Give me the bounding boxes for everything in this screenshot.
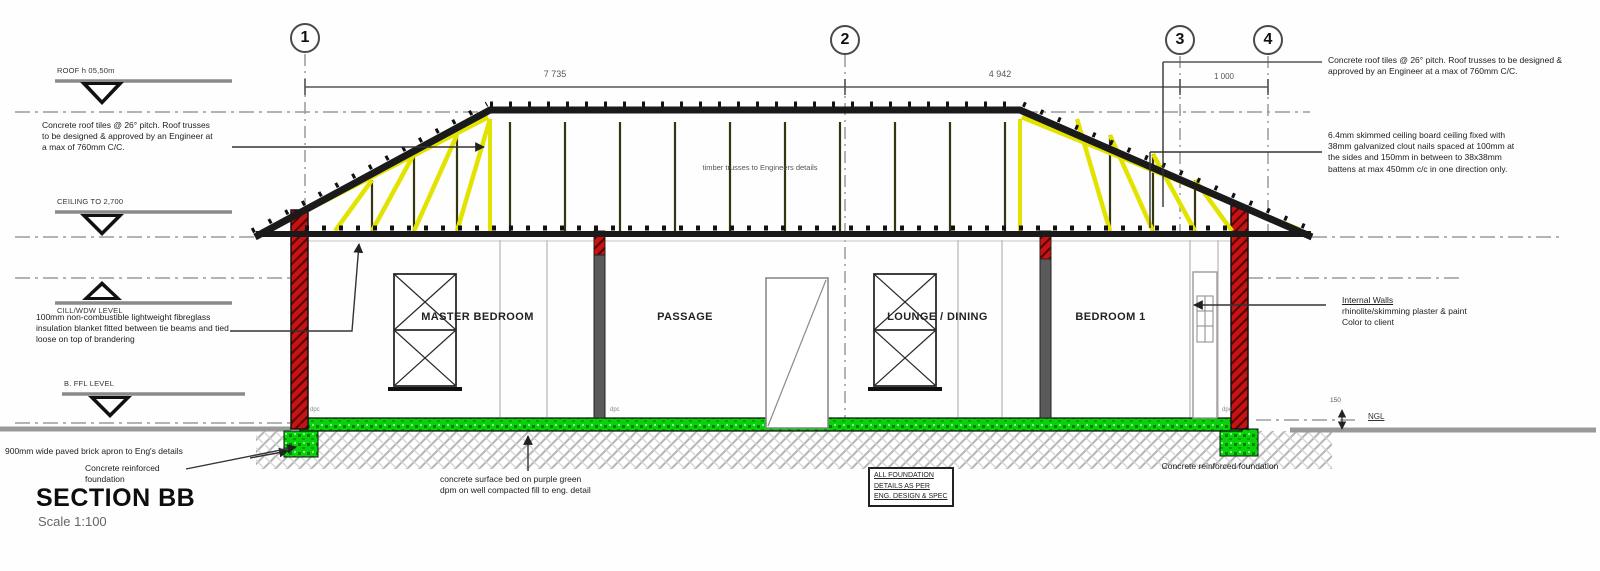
section-drawing-canvas [0,0,1600,571]
room-label-bedroom-1: BEDROOM 1 [1058,311,1163,323]
note-foundation-left: Concrete reinforced foundation [85,463,200,485]
section-drawing-sheet: 1 2 3 4 7 735 4 942 1 000 ROOF h 05,50m … [0,0,1600,571]
note-insulation: 100mm non-combustible lightweight fibreg… [36,312,236,346]
note-foundation-right: Concrete reinforced foundation [1155,461,1285,472]
note-surface-bed: concrete surface bed on purple green dpm… [440,474,600,496]
foundation-box-line1: ALL FOUNDATION [874,471,948,482]
leader-lines [186,62,1326,471]
window-lounge [868,274,942,389]
dpc-label-right: dpc [1222,407,1232,413]
room-label-lounge-dining: LOUNGE / DINING [855,311,1020,323]
level-label-ffl: B. FFL LEVEL [64,379,114,388]
grid-bubble-3: 3 [1165,25,1195,55]
drawing-scale: Scale 1:100 [38,514,107,529]
note-internal-walls-title: Internal Walls [1342,295,1393,305]
dimension-span-1-2: 7 735 [505,69,605,79]
note-paved-apron: 900mm wide paved brick apron to Eng's de… [5,446,201,457]
foundation-box-line3: ENG. DESIGN & SPEC [874,492,948,503]
foundation-box-line2: DETAILS AS PER [874,482,948,493]
dpc-label-left: dpc [310,407,320,413]
dimension-span-3-4: 1 000 [1190,72,1258,81]
bedroom-door [1190,240,1218,418]
grid-bubble-4: 4 [1253,25,1283,55]
foundation-spec-box: ALL FOUNDATION DETAILS AS PER ENG. DESIG… [868,467,954,507]
note-internal-walls-line1: rhinolite/skimming plaster & paint [1342,306,1467,316]
note-internal-walls-line2: Color to client [1342,317,1394,327]
note-roof-tiles-left: Concrete roof tiles @ 26° pitch. Roof tr… [42,120,214,154]
grid-bubble-1: 1 [290,23,320,53]
note-ceiling-board: 6.4mm skimmed ceiling board ceiling fixe… [1328,130,1523,175]
dpc-label-mid: dpc [610,407,620,413]
dimension-lines [305,62,1322,95]
passage-door [766,278,828,428]
truss-webs [268,117,1300,231]
dimension-span-2-3: 4 942 [950,69,1050,79]
note-internal-walls: Internal Walls rhinolite/skimming plaste… [1342,295,1557,329]
drawing-title: SECTION BB [36,484,195,513]
ngl-label: NGL [1368,412,1384,421]
note-timber-trusses: timber trusses to Engineers details [660,163,860,172]
room-label-passage: PASSAGE [640,311,730,323]
note-roof-tiles-right: Concrete roof tiles @ 26° pitch. Roof tr… [1328,55,1568,77]
level-label-roof: ROOF h 05,50m [57,66,115,75]
room-label-master-bedroom: MASTER BEDROOM [395,311,560,323]
level-label-ceiling: CEILING TO 2,700 [57,197,123,206]
ngl-offset-value: 150 [1330,397,1341,404]
grid-bubble-2: 2 [830,25,860,55]
window-master-bedroom [388,274,462,389]
